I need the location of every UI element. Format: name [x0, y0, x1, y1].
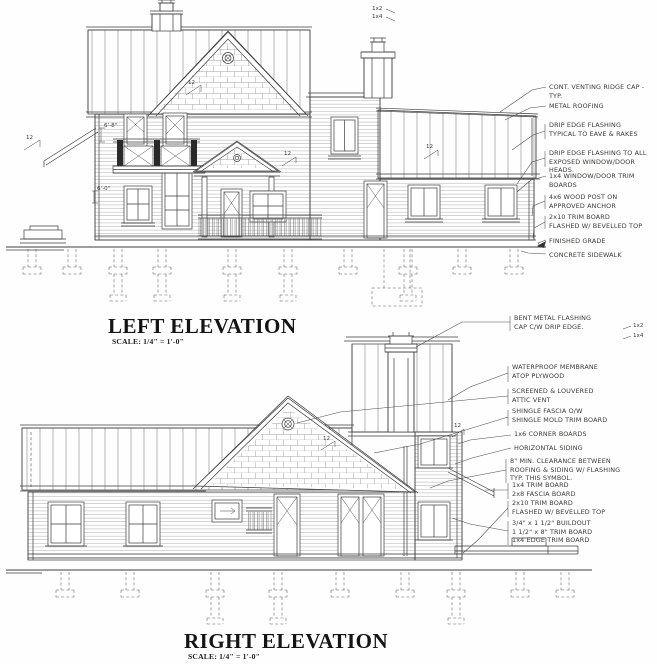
left-elevation-title: LEFT ELEVATION: [108, 314, 296, 339]
annotation-note: 1x4 TRIM BOARD 2x8 FASCIA BOARD: [512, 481, 630, 498]
annotation-note: SCREENED & LOUVERED ATTIC VENT: [512, 387, 630, 404]
trim-label: 1x4: [633, 333, 644, 339]
pitch-label: 12: [454, 423, 461, 429]
annotation-note: 4x6 WOOD POST ON APPROVED ANCHOR: [549, 193, 657, 210]
annotation-note: FINISHED GRADE: [549, 237, 657, 246]
right-wing-wall: [364, 179, 534, 240]
annotation-note: BENT METAL FLASHING CAP C/W DRIP EDGE.: [514, 314, 632, 331]
annotation-note: CONCRETE SIDEWALK: [549, 251, 657, 260]
right-side-wall: [415, 432, 494, 560]
pitch-label: 12: [284, 151, 291, 157]
left-elevation-scale: SCALE: 1/4" = 1'-0": [112, 337, 184, 346]
annotation-note: 2x10 TRIM BOARD FLASHED W/ BEVELLED TOP: [512, 499, 630, 516]
foundation-piers: [23, 249, 523, 301]
annotation-note: WATERPROOF MEMBRANE ATOP PLYWOOD: [512, 363, 630, 380]
annotation-note: CONT. VENTING RIDGE CAP - TYP.: [549, 83, 657, 100]
right-wing-roof: [376, 108, 540, 179]
right-elevation-scale: SCALE: 1/4" = 1'-0": [188, 652, 260, 661]
pitch-label: 12: [26, 135, 33, 141]
annotation-note: 8" MIN. CLEARANCE BETWEEN ROOFING & SIDI…: [510, 457, 640, 483]
foundation-piers: [56, 572, 574, 624]
trim-label: 1x4: [372, 14, 383, 20]
below-grade-dashed: [372, 249, 422, 306]
left-elevation-drawing: 12 12 12 12 6'-8" 6'-0" 1x2 1x4: [6, 0, 546, 306]
annotation-note: DRIP EDGE FLASHING TYPICAL TO EAVE & RAK…: [549, 121, 657, 138]
annotation-note: 1x6 CORNER BOARDS: [514, 430, 632, 439]
dim-label: 6'-8": [104, 123, 118, 129]
right-elevation-title: RIGHT ELEVATION: [184, 629, 388, 654]
trim-label: 1x2: [633, 323, 643, 329]
annotation-note: 3/4" x 1 1/2" BUILDOUT 1 1/2" x 8" TRIM …: [512, 519, 630, 545]
annotation-note: SHINGLE FASCIA O/W SHINGLE MOLD TRIM BOA…: [512, 407, 632, 424]
annotation-note: METAL ROOFING: [549, 102, 657, 111]
annotation-note: HORIZONTAL SIDING: [514, 444, 632, 453]
trim-label: 1x2: [372, 6, 382, 12]
dim-label: 6'-0": [97, 186, 111, 192]
pitch-label: 12: [323, 436, 330, 442]
annotation-note: 2x10 TRIM BOARD FLASHED W/ BEVELLED TOP: [549, 213, 657, 230]
pitch-label: 12: [188, 80, 195, 86]
annotation-note: 1x4 WINDOW/DOOR TRIM BOARDS: [549, 172, 657, 189]
pitch-label: 12: [426, 144, 433, 150]
rear-chimney: [361, 38, 395, 98]
tall-chimney: [385, 332, 417, 432]
drawing-sheet: 12 12 12 12 6'-8" 6'-0" 1x2 1x4: [0, 0, 657, 664]
chimney: [150, 0, 183, 31]
